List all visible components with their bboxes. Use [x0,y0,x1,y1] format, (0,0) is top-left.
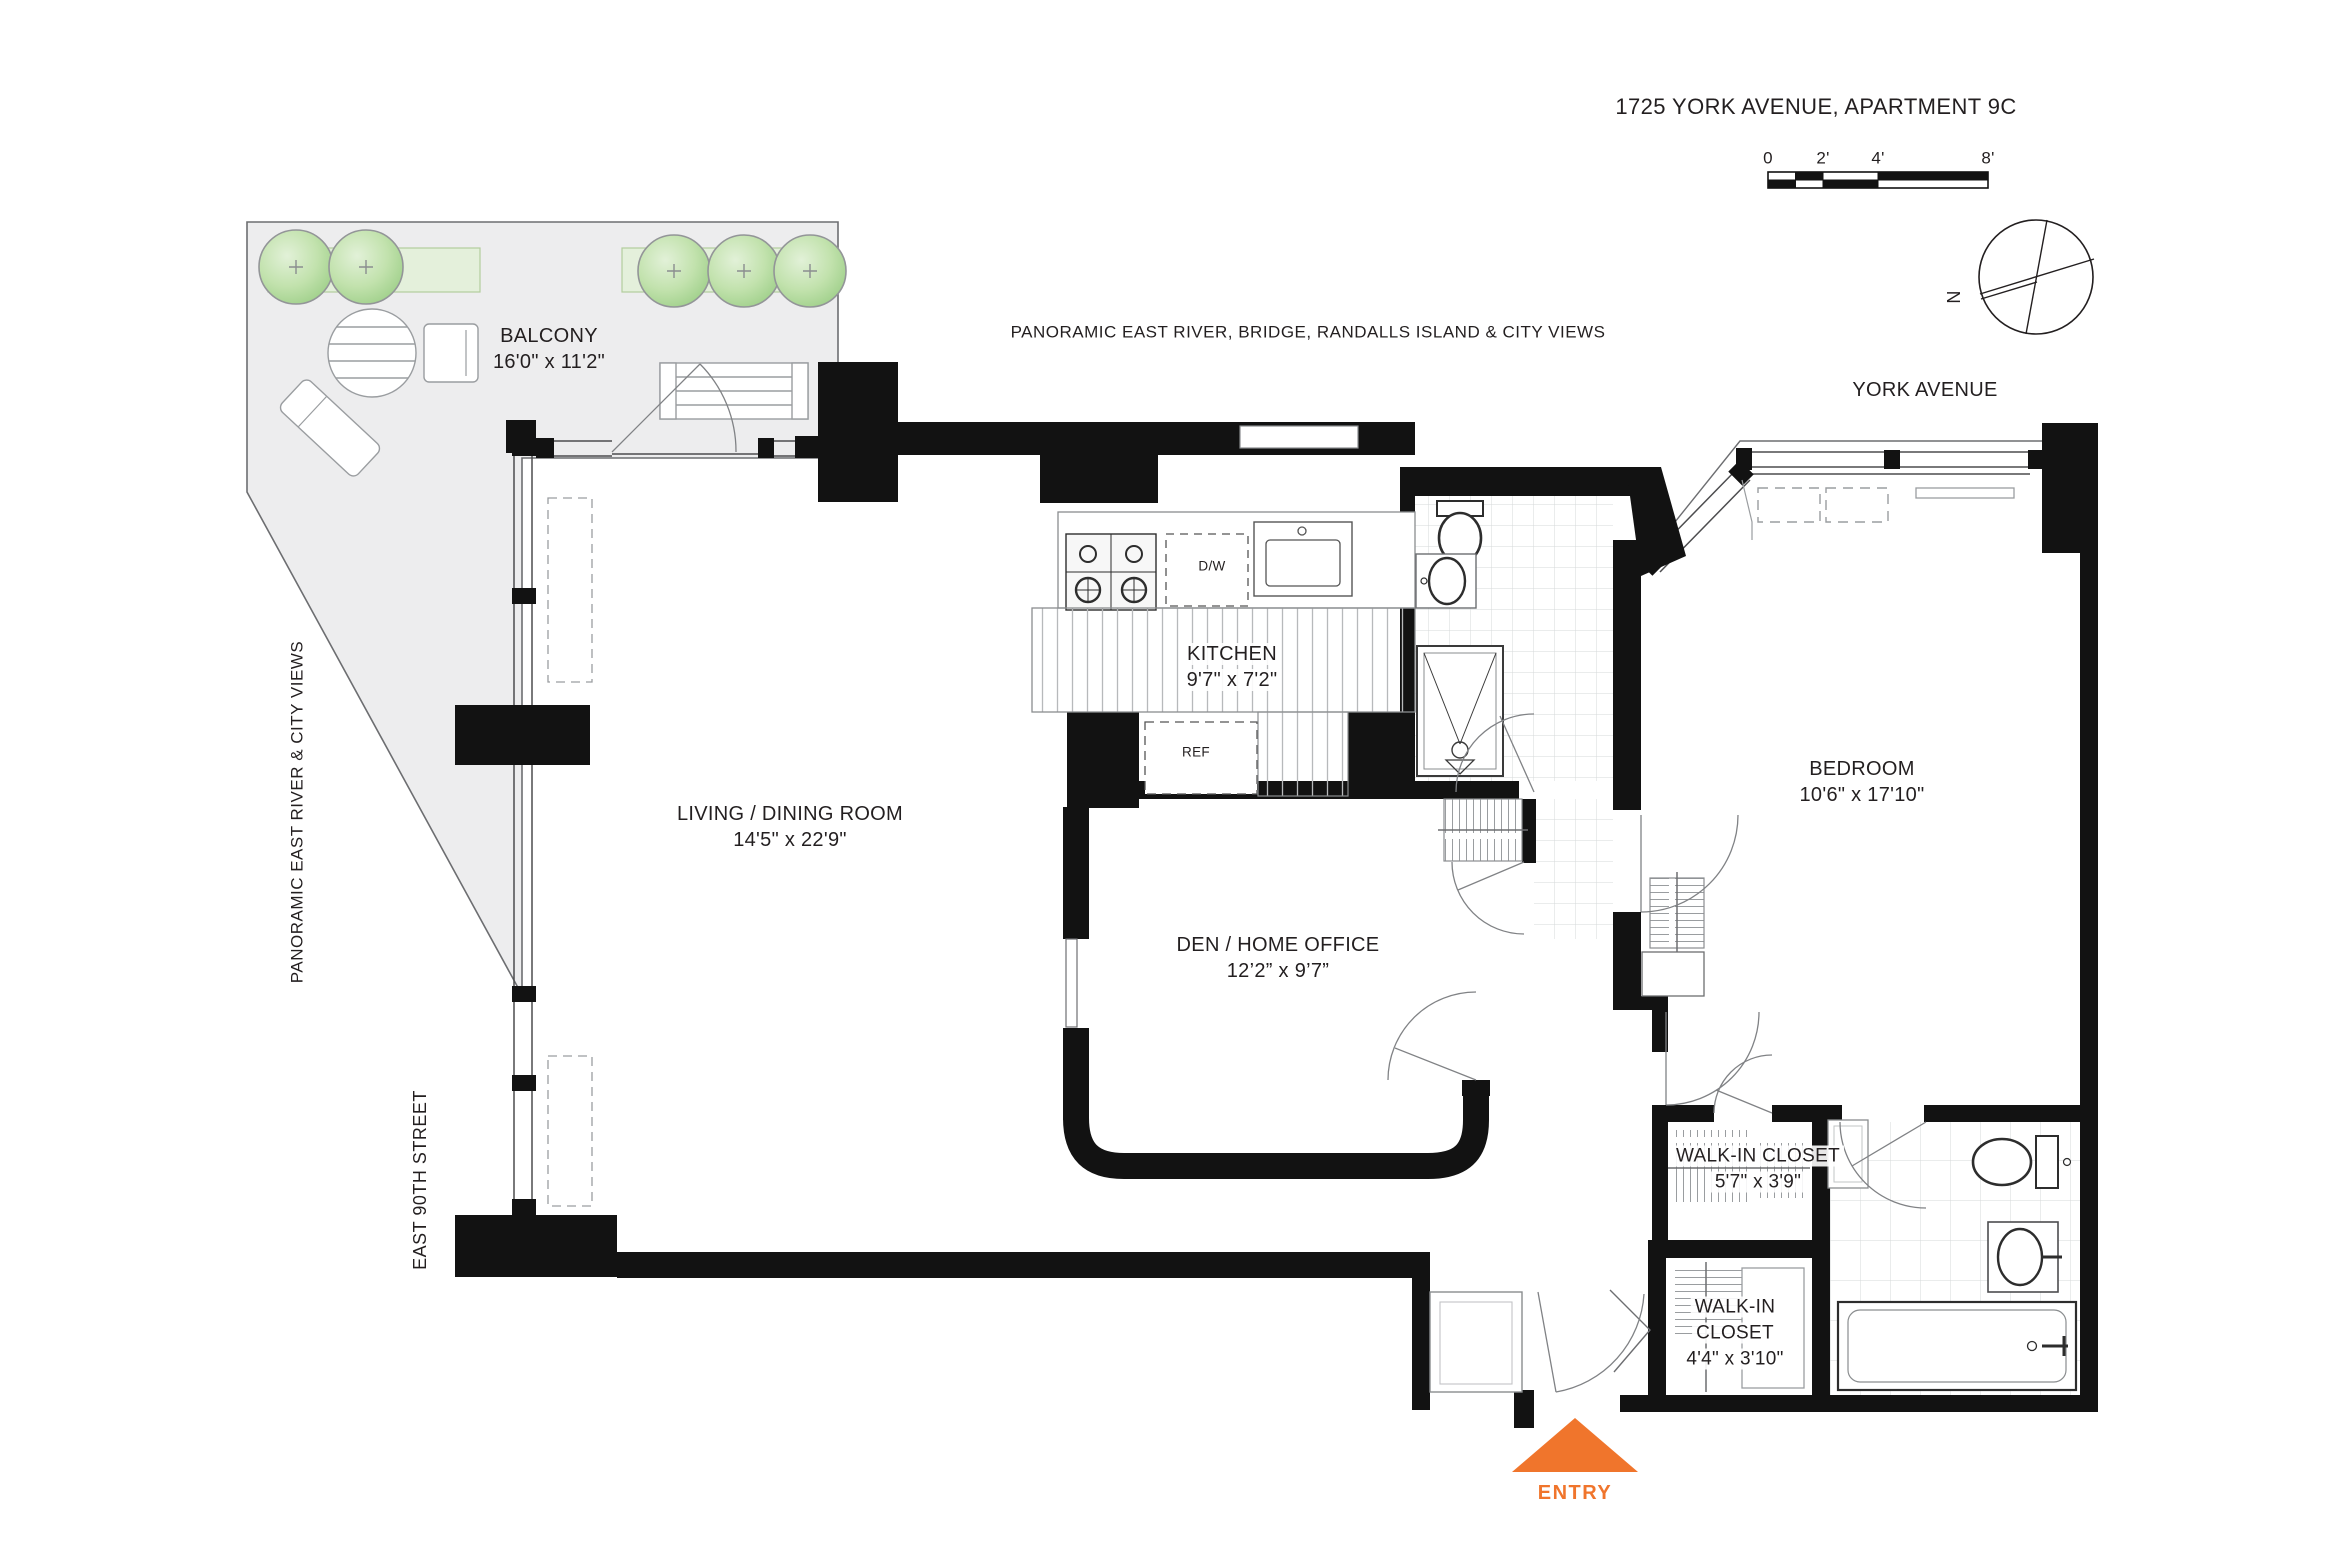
room-label-wic1: WALK-IN CLOSET [1672,1146,1844,1167]
stove-icon [1066,534,1156,610]
room-dims-den: 12’2” x 9’7” [1227,961,1330,981]
scale-tick-2: 2' [1816,150,1829,167]
living-room-furniture [548,498,592,1206]
linen-closet [1438,799,1528,861]
scale-tick-8: 8' [1981,150,1994,167]
shower-icon [1417,646,1503,776]
den-curved-wall [1076,1096,1476,1166]
room-dims-kitchen: 9'7" x 7'2" [1183,669,1282,691]
entry-label: ENTRY [1538,1483,1613,1503]
plan-title: 1725 YORK AVENUE, APARTMENT 9C [1615,96,2016,118]
room-dims-wic2: 4'4" x 3'10" [1682,1349,1787,1370]
balcony-table [328,309,416,397]
tiled-floors [1415,496,2084,1395]
compass-north-label: N [1945,290,1963,303]
hall-dresser [1642,952,1704,996]
room-dims-living: 14'5" x 22'9" [733,830,847,850]
hall-wardrobe [1642,872,1704,996]
toilet-icon [1973,1136,2071,1188]
floor-plan: 1725 YORK AVENUE, APARTMENT 9C 0 2' 4' 8… [0,0,2340,1552]
room-label-den: DEN / HOME OFFICE [1177,935,1380,955]
appliance-label-dishwasher: D/W [1198,559,1225,573]
kitchen-window [1240,426,1358,448]
room-dims-bedroom: 10'6" x 17'10" [1799,785,1924,805]
kitchen-sink-icon [1254,522,1352,596]
balcony-bench [660,363,808,419]
room-dims-wic1: 5'7" x 3'9" [1711,1172,1805,1193]
scale-tick-0: 0 [1763,150,1773,167]
street-east-90th: EAST 90TH STREET [411,1090,429,1270]
bedroom-closet [1742,480,2014,540]
pocket-door [1066,939,1077,1027]
scale-tick-4: 4' [1871,150,1884,167]
room-label-wic2-line1: WALK-IN [1691,1297,1780,1318]
room-label-wic2-line2: CLOSET [1692,1323,1778,1344]
floor-plan-drawing [0,0,2340,1552]
sink-icon [1988,1222,2062,1292]
room-label-living: LIVING / DINING ROOM [677,804,903,824]
scale-bar [1768,172,1988,188]
entry-area [1430,1292,1638,1472]
building-outline [1630,441,2042,578]
sink-icon [1416,554,1476,608]
views-caption-west: PANORAMIC EAST RIVER & CITY VIEWS [289,641,306,983]
room-label-bedroom: BEDROOM [1809,759,1914,779]
appliance-label-refrigerator: REF [1182,745,1210,759]
street-york-avenue: YORK AVENUE [1852,380,1997,400]
room-label-balcony: BALCONY [500,326,598,346]
room-label-kitchen: KITCHEN [1183,643,1281,665]
bathtub-icon [1838,1302,2076,1390]
compass-icon [1979,220,2094,334]
room-dims-balcony: 16'0" x 11'2" [493,352,605,372]
views-caption-north: PANORAMIC EAST RIVER, BRIDGE, RANDALLS I… [1011,324,1606,341]
balcony-chair [424,324,478,382]
